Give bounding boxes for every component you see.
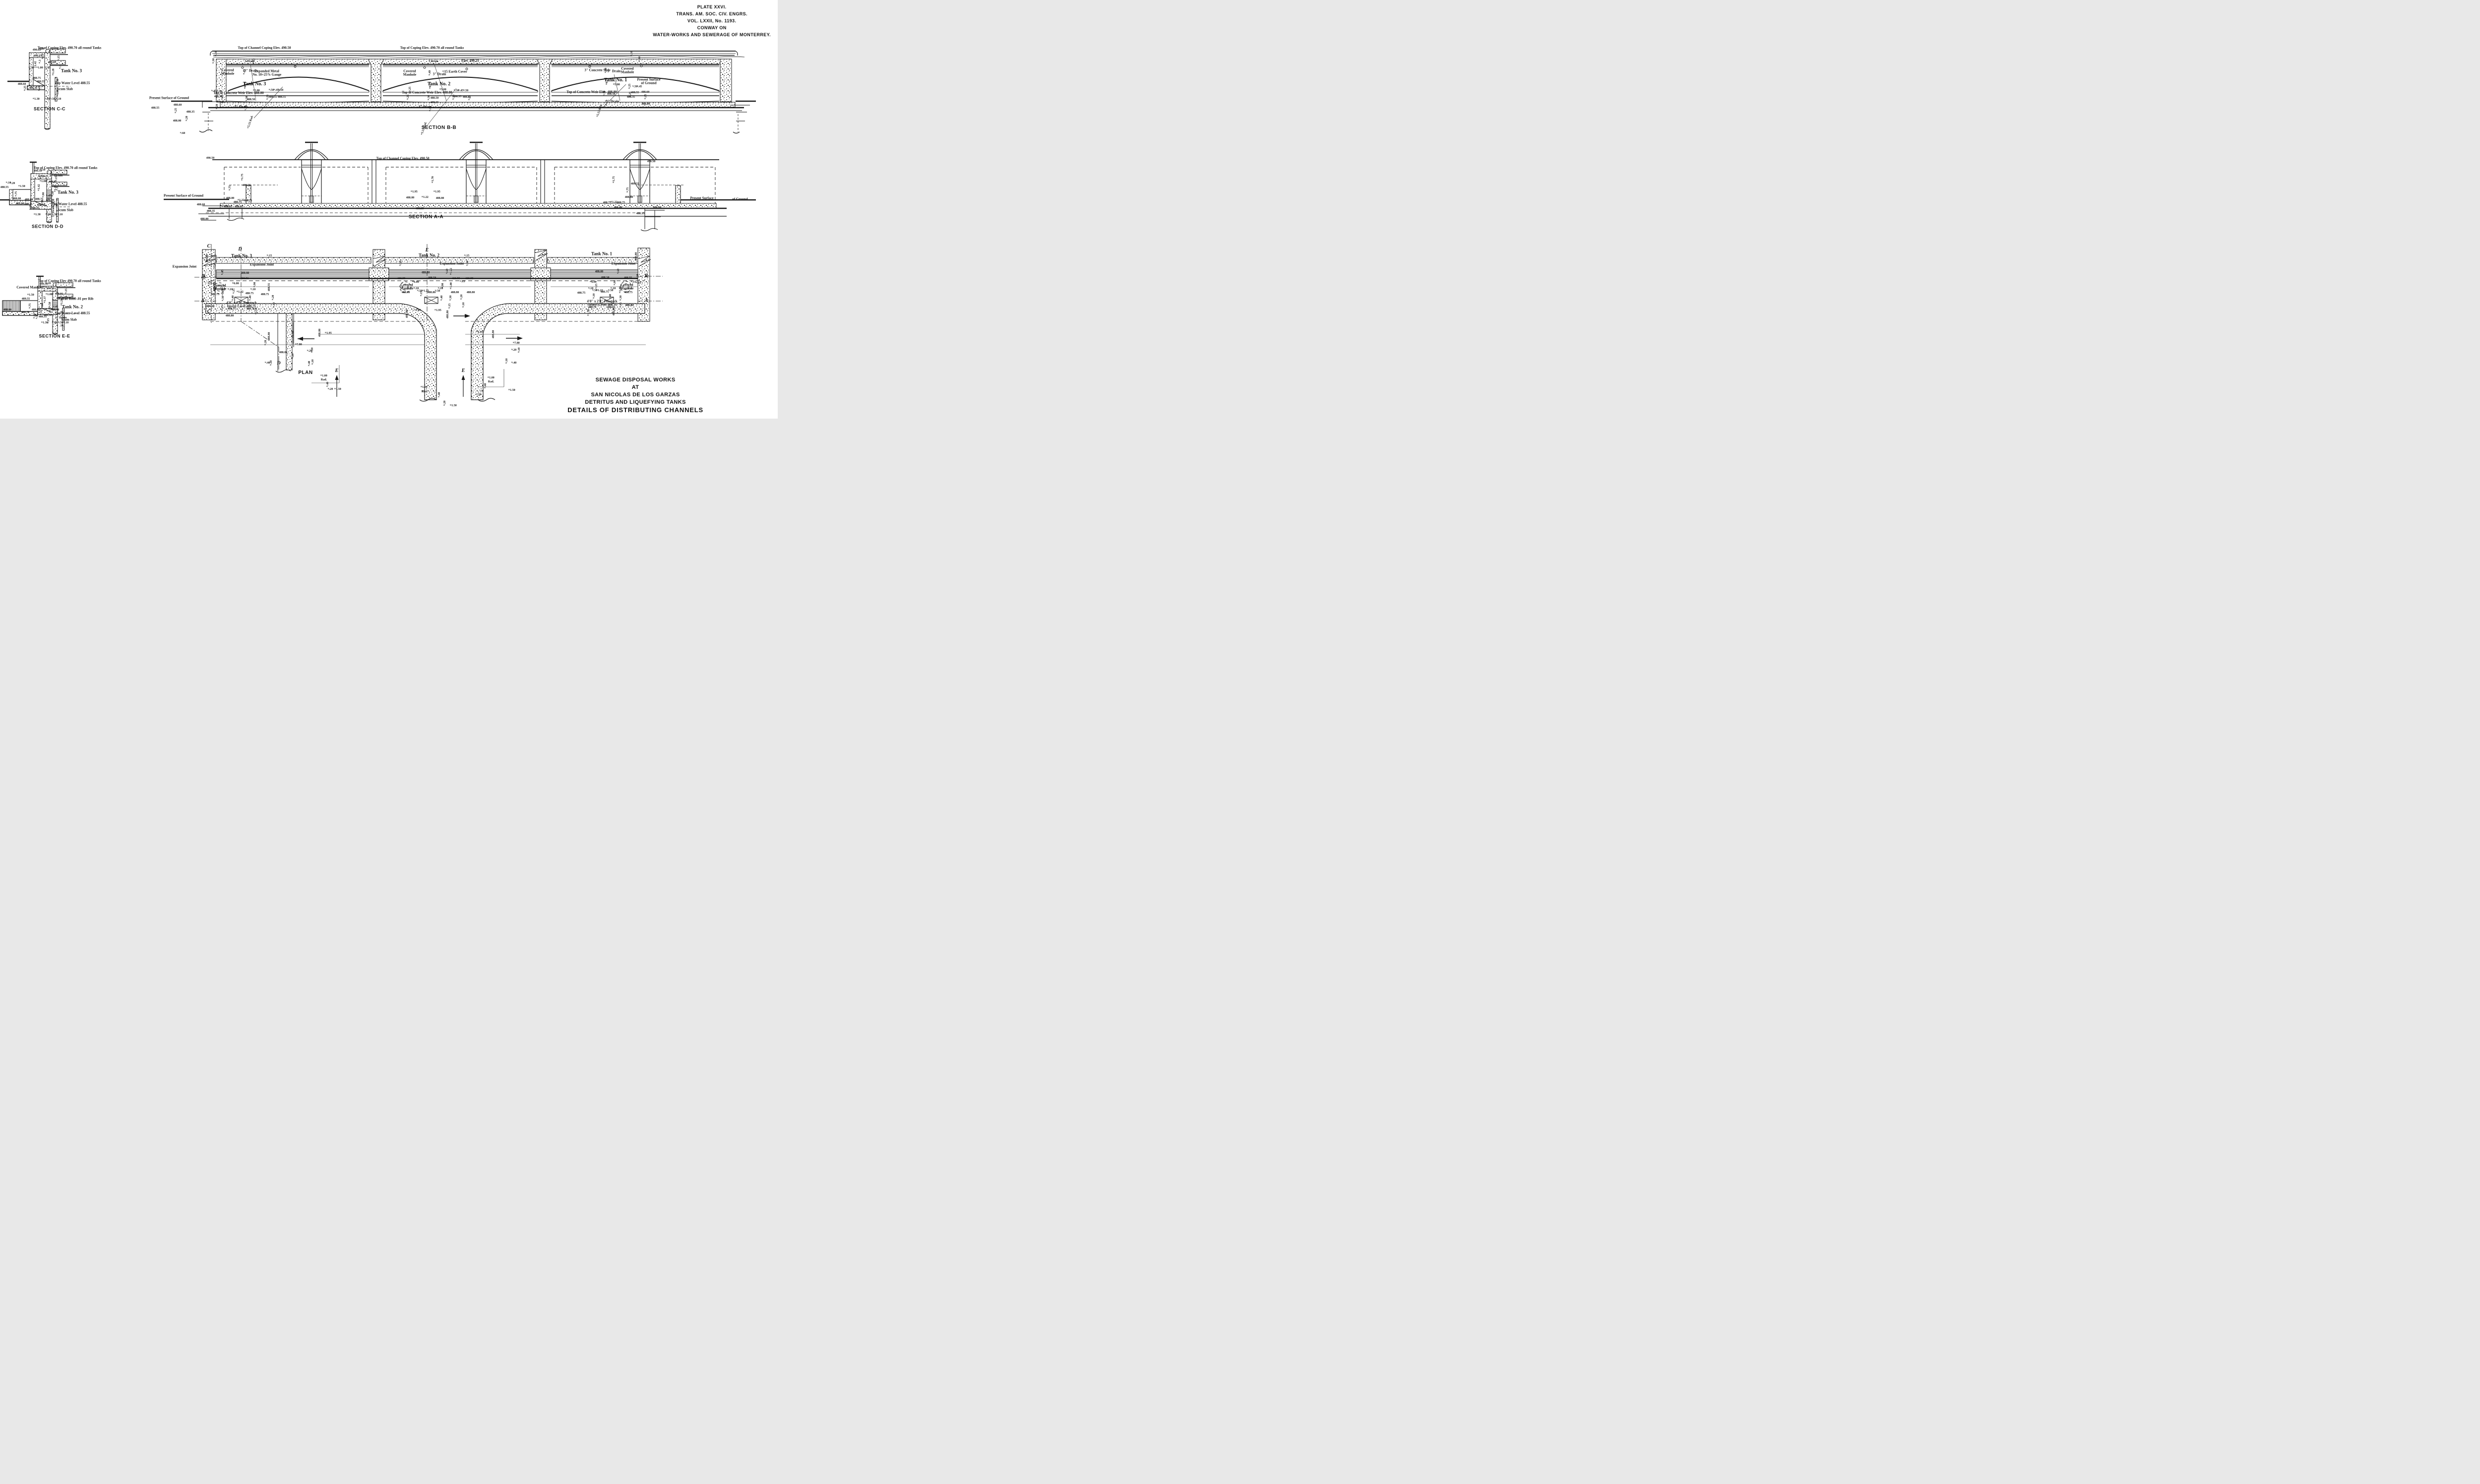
annotation-label: 488.75: [211, 293, 220, 296]
annotation-label: 490.25: [47, 287, 55, 290]
annotation-label: Fall of Roof-.01 per Rib: [59, 298, 94, 301]
annotation-label: ᵐ.15: [267, 254, 272, 257]
annotation-label: Tank No. 2: [428, 82, 451, 87]
annotation-label: ᵐ.20: [292, 354, 295, 359]
annotation-label: ᵐ1.00: [488, 376, 494, 379]
annotation-label: ᵐ.25: [628, 84, 631, 89]
annotation-label: 488.55: [452, 277, 460, 280]
annotation-label: ᵐ.45: [46, 194, 51, 197]
annotation-label: 488.55: [0, 186, 9, 189]
work-title: WATER-WORKS AND SEWERAGE OF MONTERREY.: [653, 32, 771, 39]
annotation-label: ᵐ.75: [29, 304, 32, 309]
annotation-label: ᵐ1.00: [46, 293, 52, 296]
annotation-label: ᵐ.45: [458, 89, 463, 92]
section-title-label: SECTION E-E: [39, 334, 70, 339]
annotation-label: ᵐ.15: [464, 254, 469, 257]
annotation-label: 488.80: [402, 291, 410, 294]
annotation-label: 488.35: [29, 87, 38, 90]
annotation-label: 488.80: [406, 310, 409, 318]
annotation-label: 488.80: [595, 270, 604, 273]
annotation-label: ᵐ.30: [620, 296, 622, 301]
annotation-label: 488.80: [25, 198, 33, 201]
annotation-label: ᵐ.10: [56, 98, 61, 101]
annotation-label: ᵐ15 Earth Cover: [442, 70, 467, 74]
annotation-label: ᵐ1.50: [18, 185, 25, 188]
annotation-label: 488.60: [197, 203, 205, 206]
annotation-label: ᵐ7.80: [295, 343, 302, 346]
annotation-label: ᵐ.30: [212, 59, 215, 63]
annotation-label: ᵐ.50: [49, 302, 52, 307]
annotation-label: 488.60: [16, 202, 24, 205]
annotation-label: 488.35: [216, 101, 225, 104]
annotation-label: ᵐ.40: [484, 383, 487, 388]
annotation-label: ᵐ.10: [505, 359, 508, 364]
annotation-label: 488.55: [151, 107, 160, 110]
plate-title-block: PLATE XXVI. TRANS. AM. SOC. CIV. ENGRS. …: [653, 4, 771, 39]
annotation-label: ᵐ.15: [42, 54, 45, 59]
annotation-label: 488.50: [44, 314, 52, 317]
annotation-label: 488.80: [268, 332, 271, 341]
annotation-label: ᵐ.25: [644, 94, 647, 99]
annotation-label: ᵐ1.75: [613, 176, 616, 183]
annotation-label: ᵐ.25: [407, 95, 410, 100]
annotation-label: Tank No. 3: [58, 190, 78, 195]
annotation-label: 488.50: [431, 97, 439, 100]
annotation-label: Tank No. 3: [231, 254, 252, 258]
annotation-label: ᵐ1.00: [421, 386, 427, 389]
annotation-label: ᵐ.45: [221, 270, 224, 275]
annotation-label: ᵐ1.95: [414, 309, 421, 312]
annotation-label: 488.55: [624, 277, 632, 280]
annotation-label: 488.75: [577, 292, 586, 295]
annotation-label: ᵐ.10: [40, 169, 45, 172]
annotation-label: ᵐ.15: [245, 106, 248, 111]
annotation-label: ᵐ.40: [609, 294, 612, 299]
annotation-label: ᵐ.10: [270, 361, 273, 366]
annotation-label: ᵐ1.50: [450, 404, 456, 407]
annotation-label: ᵐ.15: [595, 284, 598, 289]
annotation-label: ᵐ1.30: [33, 98, 39, 101]
annotation-label: ᵐ.15: [448, 304, 451, 309]
annotation-label: 488.00: [206, 254, 209, 263]
annotation-label: ᵐ.40: [440, 296, 443, 301]
annotation-label: ᵐ.75: [15, 191, 18, 196]
annotation-label: 488.75: [624, 291, 633, 294]
annotation-label: 488.75: [588, 306, 597, 309]
annotation-label: 488.00: [173, 120, 182, 123]
annotation-label: ᵐ.15: [43, 286, 46, 291]
annotation-label: 488.75: [21, 311, 30, 314]
annotation-label: ᵐ1.00: [320, 374, 327, 377]
annotation-label: ᵐ.60: [617, 269, 620, 274]
annotation-label: ᵐ1.50: [334, 388, 341, 391]
annotation-label: ᵐ.20: [216, 104, 219, 109]
author-line: CONWAY ON: [653, 25, 771, 32]
annotation-label: ᵐ1.95: [411, 190, 417, 193]
annotation-label: Manhole: [403, 73, 416, 77]
annotation-label: ᵐ1.50: [587, 309, 590, 315]
annotation-label: Expansion Joint: [612, 262, 635, 266]
annotation-label: ᵐ.30: [29, 66, 34, 69]
annotation-label: Top of Coping Elev. 490.70 all round Tan…: [400, 47, 464, 50]
annotation-label: 488.75: [247, 308, 255, 310]
annotation-label: 488.80: [613, 308, 616, 316]
annotation-label: ᵐ.25: [24, 86, 27, 91]
annotation-label: ᵐ.50: [50, 98, 55, 101]
annotation-label: 488.80: [279, 351, 288, 354]
annotation-label: ᵐ1.42: [38, 184, 41, 190]
annotation-label: ᵐ.50: [57, 79, 60, 84]
annotation-label: 488.75: [33, 77, 41, 80]
annotation-label: ᵐ6.00: [232, 282, 239, 285]
annotation-label: .10: [60, 324, 63, 327]
annotation-label: ᵐ.15: [29, 205, 32, 210]
annotation-label: ᵐ.10: [630, 51, 633, 56]
annotation-label: ᵐ1.30: [41, 321, 48, 324]
annotation-label: ᵐ.25: [452, 95, 455, 100]
annotation-label: 488.50: [247, 98, 255, 101]
annotation-label: ᵐ.40: [249, 296, 252, 301]
annotation-label: Tank No. 3: [243, 82, 266, 87]
annotation-label: 3 Drain: [429, 60, 438, 63]
annotation-label: No. 10+25% Gauge: [252, 73, 281, 77]
gate-valve-2: [459, 142, 493, 204]
annotation-label: 488.80: [318, 329, 321, 337]
annotation-label: ᵐ.40: [326, 382, 329, 387]
annotation-label: ᵐ.45: [637, 85, 642, 88]
annotation-label: ᵐ.15: [38, 175, 41, 180]
annotation-label: Covered Manhole: [16, 286, 43, 290]
annotation-label: ᵐ.10: [611, 287, 616, 290]
annotation-label: 490.50: [647, 160, 656, 163]
annotation-label: 488.35: [636, 212, 645, 215]
annotation-label: 488.50: [607, 93, 616, 96]
annotation-label: ᵐ1.50: [255, 308, 258, 314]
annotation-label: 488.35: [31, 207, 40, 210]
annotation-label: ᵐ.20: [476, 393, 481, 396]
annotation-label: ᵐ.90: [441, 283, 444, 288]
annotation-label: 488.80: [32, 309, 40, 311]
annotation-label: Expansion Joint: [440, 262, 464, 266]
annotation-label: ᵐ.30: [222, 296, 225, 301]
annotation-label: 488.35: [627, 96, 635, 99]
annotation-label: ᵐ1.70: [432, 176, 434, 183]
annotation-label: ᵐ.20: [460, 295, 463, 300]
annotation-label: ᵐ.10: [593, 294, 596, 299]
annotation-label: ᵐ.15: [252, 59, 255, 63]
annotation-label: ᵐ.40: [265, 362, 270, 365]
annotation-label: ᵐ.10: [215, 51, 218, 56]
annotation-label: ᵐ1.95: [434, 190, 440, 193]
engineering-plate: { "title_block": { "lines": ["PLATE XXVI…: [0, 0, 778, 419]
annotation-label: 489.91: [55, 293, 63, 296]
annotation-label: ᵐ.30: [33, 313, 36, 318]
section-marker-label: C: [207, 309, 211, 314]
section-title-label: SECTION B-B: [422, 125, 457, 130]
annotation-label: 488.60: [174, 104, 182, 107]
annotation-label: ᵐ.49: [243, 69, 246, 74]
annotation-label: 488.55: [278, 96, 286, 99]
annotation-label: 488.75: [603, 201, 612, 204]
annotation-label: 488.80: [446, 310, 449, 319]
annotation-label: Tank No. 2: [419, 253, 439, 258]
annotation-label: 488.55: [37, 80, 45, 83]
annotation-label: Tank No. 2: [62, 305, 83, 309]
annotation-label: ᵐ5.00: [613, 83, 620, 86]
annotation-label: 488.50: [428, 277, 436, 280]
annotation-label: ᵐ.45: [45, 66, 50, 69]
annotation-label: ᵐ.20: [264, 340, 267, 345]
works-at: AT: [567, 384, 703, 391]
annotation-label: ᵐ.60: [46, 213, 51, 216]
annotation-label: 488.80: [428, 291, 436, 294]
annotation-label: 488.55: [465, 277, 474, 280]
annotation-label: ᵐ.10: [311, 348, 314, 353]
annotation-label: 490.25: [40, 175, 49, 178]
annotation-label: Present Surface: [690, 197, 713, 200]
annotation-label: ᵐ.40: [308, 361, 311, 366]
annotation-label: ᵐ.60: [41, 303, 44, 308]
annotation-label: ᵐ.25: [221, 95, 224, 100]
annotation-label: 488.75: [261, 293, 269, 296]
section-marker-label: A: [201, 299, 205, 304]
annotation-label: ᵐ.50: [399, 261, 402, 266]
annotation-label: Manhole: [620, 287, 633, 291]
annotation-label: 488.80: [226, 197, 235, 200]
annotation-label: Top of Coping Elev 490.70 all round Tank…: [38, 280, 101, 283]
annotation-label: ᵐ.20: [443, 401, 446, 406]
annotation-label: ᵐ1.28: [52, 68, 55, 75]
annotation-label: ᵐ.10: [250, 288, 255, 291]
annotation-label: 488.60: [224, 205, 232, 208]
annotation-label: 488.35: [431, 101, 439, 104]
works-location: SAN NICOLAS DE LOS GARZAS: [567, 391, 703, 399]
section-marker-label: B: [201, 275, 205, 280]
annotation-label: Top of Coping Elev. 490.70 all round Tan…: [38, 47, 102, 50]
annotation-label: ᵐ.30: [449, 296, 452, 301]
annotation-label: ᵐ1.00: [619, 286, 622, 293]
annotation-label: ᵐ1.95: [434, 309, 441, 312]
annotation-label: ᵐ.15: [636, 282, 641, 285]
annotation-label: ᵐ1.22: [238, 199, 244, 202]
annotation-label: ᵐ.10: [63, 321, 68, 324]
section-title-label: SECTION A-A: [409, 215, 443, 220]
annotation-label: ᵐ1.00: [222, 289, 225, 295]
annotation-label: ᵐ.60: [180, 132, 185, 135]
annotation-label: 488.80: [3, 309, 12, 311]
annotation-label: ᵐ.90: [253, 282, 256, 287]
annotation-label: of Ground: [641, 82, 656, 85]
annotation-label: Expansion Joint: [173, 265, 196, 269]
annotation-label: Manhole: [221, 72, 234, 76]
annotation-label: Elev. 490.25: [461, 60, 479, 63]
annotation-label: ᵐ.75: [229, 185, 232, 190]
annotation-label: Scum Slab: [58, 209, 73, 212]
annotation-label: ᵐ.60: [45, 98, 50, 101]
drawing-title-block: SEWAGE DISPOSAL WORKS AT SAN NICOLAS DE …: [567, 376, 703, 415]
annotation-label: ᵐ.49: [429, 70, 432, 75]
annotation-label: 488.60: [653, 206, 662, 209]
annotation-label: ᵐ.3: [39, 60, 42, 63]
annotation-label: 488.60: [235, 205, 243, 208]
annotation-label: ᵐ.50: [466, 261, 469, 266]
annotation-label: ᵐ1.30: [34, 213, 40, 216]
annotation-label: 488.75: [601, 291, 609, 294]
annotation-label: Top of Channel Coping Elev. 490.50: [238, 47, 291, 50]
annotation-label: ᵐ.25: [468, 95, 471, 100]
annotation-label: ᵐ.20: [328, 388, 333, 391]
annotation-label: ᵐ.10: [39, 48, 44, 51]
annotation-label: 488.35: [416, 207, 424, 210]
annotation-label: ᵐ.30: [638, 57, 641, 62]
annotation-label: 488.55: [631, 91, 639, 94]
annotation-label: ᵐ.10: [518, 348, 521, 353]
annotation-label: 488.75: [244, 199, 252, 202]
annotation-label: ᵐ.15: [58, 56, 61, 61]
tanks-line: DETRITUS AND LIQUEFYING TANKS: [567, 399, 703, 406]
annotation-label: Tank No. 3: [61, 69, 82, 73]
annotation-label: ᵐ1.95: [476, 331, 483, 334]
annotation-label: ᵐ.15: [221, 306, 224, 310]
annotation-label: 488.60: [614, 206, 622, 209]
annotation-label: Top of Channel Coping Elev. 490.50: [376, 157, 430, 161]
annotation-label: ᵐ.15: [429, 106, 432, 111]
annotation-label: 488.80: [406, 196, 415, 199]
annotation-label: ᵐ.15: [65, 289, 68, 294]
annotation-label: ᵐ.20: [186, 116, 188, 121]
annotation-label: 488.50: [241, 277, 249, 280]
annotation-label: 488.00: [635, 252, 638, 261]
annotation-label: ᵐ.50: [52, 213, 57, 216]
annotation-label: ᵐ.20: [10, 182, 15, 185]
annotation-label: Rad.: [321, 378, 327, 381]
section-marker-label: A: [645, 299, 648, 304]
annotation-label: Rad.: [422, 390, 428, 393]
annotation-label: 488.60: [625, 304, 634, 307]
annotation-label: 488.35: [207, 210, 215, 213]
penstock-symbols: [235, 297, 614, 304]
annotation-label: ᵐ.25: [409, 87, 412, 92]
annotation-label: ᵐ.75: [626, 187, 629, 192]
annotation-label: ᵐ.20: [272, 295, 275, 300]
annotation-label: 488.80: [13, 197, 21, 200]
annotation-label: ᵐ1.22: [450, 268, 453, 274]
annotation-label: 488.75: [617, 201, 625, 204]
annotation-label: 488.60: [641, 91, 650, 94]
annotation-label: ᵐ.40: [511, 362, 516, 365]
annotation-label: ᵐ.50: [278, 89, 283, 92]
annotation-label: 489.91: [48, 61, 57, 64]
annotation-label: Tank No. 1: [604, 78, 627, 83]
section-aa-drawing: [164, 142, 756, 231]
annotation-label: 488.80: [436, 197, 444, 200]
annotation-label: ᵐ.10: [462, 303, 465, 308]
annotation-label: ᵐ1.50: [508, 389, 515, 392]
section-marker-label: E: [335, 369, 339, 373]
annotation-label: 488.80: [625, 196, 633, 199]
annotation-label: ᵐ.50: [269, 89, 274, 92]
annotation-label: ᵐ.60: [52, 321, 57, 324]
annotation-label: 489.55: [631, 183, 639, 185]
annotation-label: ᵐ1.95: [325, 332, 331, 335]
plate-number: PLATE XXVI.: [653, 4, 771, 11]
annotation-label: ᵐ1.00: [57, 89, 60, 96]
annotation-label: 488.55: [397, 277, 406, 280]
annotation-label: 488.80: [451, 291, 459, 294]
annotation-label: Rad.: [488, 380, 494, 383]
annotation-label: 488.35: [186, 111, 195, 114]
annotation-label: 488.55: [268, 283, 271, 292]
sheet-subject: DETAILS OF DISTRIBUTING CHANNELS: [567, 406, 703, 415]
annotation-label: ᵐ.20: [38, 86, 41, 91]
drawing-canvas: [0, 0, 778, 419]
annotation-label: 488.55: [269, 96, 277, 99]
annotation-label: ᵐ.40: [232, 296, 235, 301]
gate-valve-1: [295, 142, 328, 204]
annotation-label: Present Surface of Ground: [164, 194, 203, 198]
annotation-label: ᵐ.49: [605, 68, 608, 73]
annotation-label: ᵐ1.22: [422, 196, 428, 199]
annotation-label: ᵐ.10: [273, 303, 276, 308]
annotation-label: 488.00: [200, 218, 209, 221]
annotation-label: ᵐ.50: [52, 191, 55, 196]
section-title-label: SECTION C-C: [34, 107, 65, 112]
annotation-label: ᵐ.10: [58, 213, 62, 216]
gate-valve-3: [623, 142, 657, 204]
section-marker-label: E: [462, 369, 465, 373]
annotation-label: ᵐ1.00: [36, 66, 43, 69]
society-name: TRANS. AM. SOC. CIV. ENGRS.: [653, 11, 771, 18]
annotation-label: 488.60: [206, 305, 215, 308]
annotation-label: ᵐ1.00: [450, 282, 453, 289]
annotation-label: ᵐ.20: [511, 349, 516, 352]
annotation-label: 489.55: [243, 184, 251, 187]
annotation-label: ᵐ.15: [40, 310, 43, 315]
volume-number: VOL. LXXII, No. 1193.: [653, 18, 771, 25]
annotation-label: Expansion Joint: [250, 263, 274, 267]
annotation-label: ᵐ7.80: [513, 342, 519, 345]
annotation-label: ᵐ.50: [213, 263, 216, 268]
annotation-label: ᵐ.15: [460, 280, 465, 283]
annotation-label: 488.80: [226, 314, 234, 317]
section-marker-label: B: [645, 274, 648, 279]
annotation-label: Tank No. 1: [591, 252, 612, 256]
annotation-label: 490.50: [206, 157, 215, 160]
annotation-label: ᵐ6.00: [412, 281, 419, 284]
annotation-label: 488.80: [467, 291, 475, 294]
annotation-label: ᵐ.15: [620, 303, 622, 308]
annotation-label: 488.75: [228, 308, 236, 310]
section-marker-label: E: [426, 248, 429, 253]
annotation-label: ᵐ.30: [603, 91, 606, 96]
annotation-label: 488.75: [246, 292, 254, 295]
annotation-label: Top Water Level 488.55: [52, 203, 87, 206]
annotation-label: of Ground: [732, 198, 747, 201]
annotation-label: ᵐ1.50: [292, 331, 295, 337]
annotation-label: ᵐ1.00: [40, 180, 46, 183]
annotation-label: ᵐ1.75: [241, 174, 244, 180]
annotation-label: 488.00: [642, 103, 650, 106]
annotation-label: ᵐ1.22: [237, 291, 243, 294]
annotation-label: ᵐ.10: [228, 288, 233, 291]
annotation-label: ᵐ.50: [463, 89, 468, 92]
annotation-label: ᵐ.60: [446, 269, 449, 274]
annotation-label: ᵐ.10: [311, 360, 314, 365]
annotation-label: ᵐ1.22: [611, 201, 617, 204]
section-marker-label: D: [277, 361, 280, 366]
annotation-label: 488.80: [492, 330, 495, 339]
annotation-label: 490.25: [34, 55, 42, 58]
